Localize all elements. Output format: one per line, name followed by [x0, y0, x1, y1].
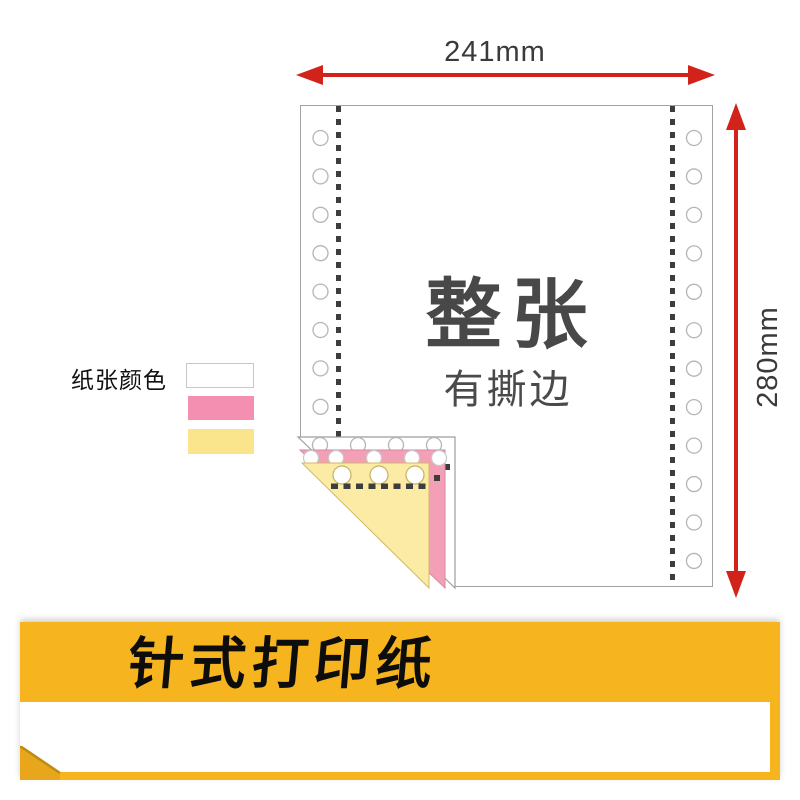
arrow-up-icon [726, 103, 746, 130]
product-banner-title: 针式打印纸 [125, 632, 441, 696]
legend-swatch-yellow [188, 429, 254, 454]
arrow-right-icon [688, 65, 715, 85]
banner-white-page [20, 702, 770, 772]
product-banner: 针式打印纸 [20, 622, 780, 780]
folded-corner-plies [291, 432, 463, 594]
legend-swatch-white [186, 363, 254, 388]
arrow-down-icon [726, 571, 746, 598]
width-dimension-label: 241mm [395, 36, 595, 69]
sheet-title: 整张 [301, 278, 712, 354]
arrow-left-icon [296, 65, 323, 85]
sheet-subtitle: 有撕边 [301, 370, 712, 410]
width-arrow-line [320, 73, 692, 77]
height-arrow-line [734, 127, 738, 575]
legend-swatch-pink [188, 396, 254, 420]
product-illustration: 241mm 280mm 整张 有撕边 [0, 0, 800, 800]
legend-title: 纸张颜色 [71, 361, 167, 395]
height-dimension-label: 280mm [753, 257, 783, 457]
page-fold-dogear-icon [20, 746, 64, 780]
